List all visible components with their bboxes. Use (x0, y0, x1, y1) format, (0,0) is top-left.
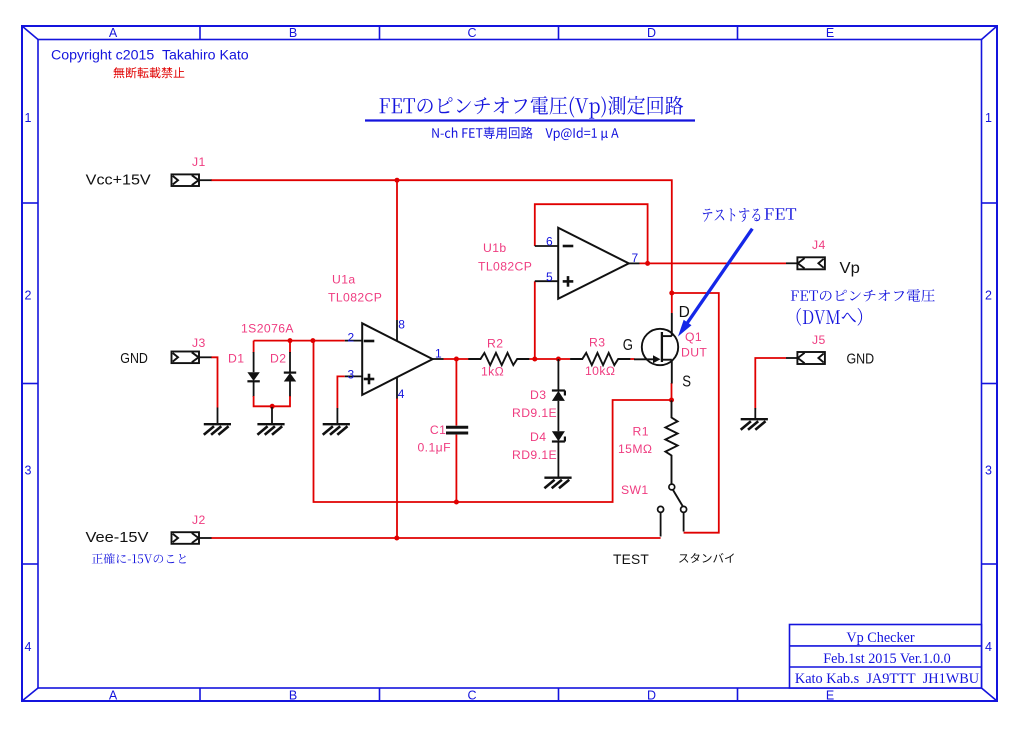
svg-text:5: 5 (546, 270, 553, 284)
svg-text:4: 4 (25, 640, 32, 654)
svg-text:Copyright c2015 Takahiro Kato: Copyright c2015 Takahiro Kato (51, 48, 249, 64)
svg-text:B: B (289, 26, 297, 40)
svg-text:DUT: DUT (681, 346, 707, 360)
svg-text:C: C (467, 26, 476, 40)
svg-text:2: 2 (348, 331, 355, 345)
svg-text:J3: J3 (192, 336, 206, 350)
svg-text:G: G (623, 337, 633, 354)
svg-text:GND: GND (847, 351, 875, 368)
svg-text:J1: J1 (192, 155, 206, 169)
svg-text:3: 3 (348, 368, 355, 382)
svg-text:S: S (682, 373, 691, 390)
svg-text:3: 3 (25, 464, 32, 478)
svg-text:SW1: SW1 (621, 483, 649, 497)
svg-text:E: E (826, 26, 834, 40)
svg-text:GND: GND (120, 350, 148, 367)
svg-text:C: C (467, 689, 476, 703)
svg-text:A: A (109, 689, 118, 703)
svg-text:7: 7 (632, 251, 639, 265)
svg-text:D: D (679, 304, 690, 321)
svg-text:0.1μF: 0.1μF (418, 441, 451, 455)
svg-text:Vp Checker: Vp Checker (846, 630, 914, 646)
svg-text:2: 2 (985, 289, 992, 303)
svg-text:8: 8 (398, 318, 405, 332)
svg-text:Vcc+15V: Vcc+15V (86, 171, 152, 188)
svg-text:R3: R3 (589, 336, 605, 350)
svg-text:U1a: U1a (332, 273, 356, 287)
svg-text:D: D (647, 689, 656, 703)
svg-text:J2: J2 (192, 513, 206, 527)
svg-text:C1: C1 (430, 423, 446, 437)
svg-text:D2: D2 (270, 352, 286, 366)
svg-text:R1: R1 (633, 425, 649, 439)
svg-text:D3: D3 (530, 388, 546, 402)
svg-text:1kΩ: 1kΩ (481, 365, 504, 379)
svg-text:E: E (826, 689, 834, 703)
svg-text:J5: J5 (812, 333, 826, 347)
svg-text:6: 6 (546, 235, 553, 249)
svg-text:RD9.1E: RD9.1E (512, 448, 557, 462)
svg-text:A: A (109, 26, 118, 40)
svg-text:D: D (647, 26, 656, 40)
svg-text:D1: D1 (228, 352, 244, 366)
svg-text:4: 4 (398, 387, 405, 401)
svg-text:Feb.1st 2015 Ver.1.0.0: Feb.1st 2015 Ver.1.0.0 (823, 651, 950, 667)
svg-text:TL082CP: TL082CP (328, 291, 382, 305)
svg-text:TEST: TEST (613, 552, 649, 567)
svg-text:1S2076A: 1S2076A (241, 322, 294, 336)
svg-text:U1b: U1b (483, 241, 507, 255)
svg-text:1: 1 (25, 111, 32, 125)
svg-text:B: B (289, 689, 297, 703)
svg-text:3: 3 (985, 464, 992, 478)
svg-text:TL082CP: TL082CP (478, 260, 532, 274)
svg-text:RD9.1E: RD9.1E (512, 406, 557, 420)
svg-text:Vp: Vp (840, 260, 860, 277)
svg-text:Vee-15V: Vee-15V (86, 529, 150, 546)
svg-text:4: 4 (985, 640, 992, 654)
svg-text:Kato Kab.s JA9TTT JH1WBU: Kato Kab.s JA9TTT JH1WBU (795, 671, 980, 687)
svg-text:1: 1 (985, 111, 992, 125)
svg-text:10kΩ: 10kΩ (585, 364, 615, 378)
svg-text:1: 1 (435, 347, 442, 361)
svg-text:J4: J4 (812, 238, 826, 252)
svg-text:R2: R2 (487, 337, 503, 351)
svg-text:2: 2 (25, 289, 32, 303)
svg-text:Q1: Q1 (685, 330, 702, 344)
svg-text:D4: D4 (530, 430, 546, 444)
svg-text:15MΩ: 15MΩ (618, 442, 652, 456)
